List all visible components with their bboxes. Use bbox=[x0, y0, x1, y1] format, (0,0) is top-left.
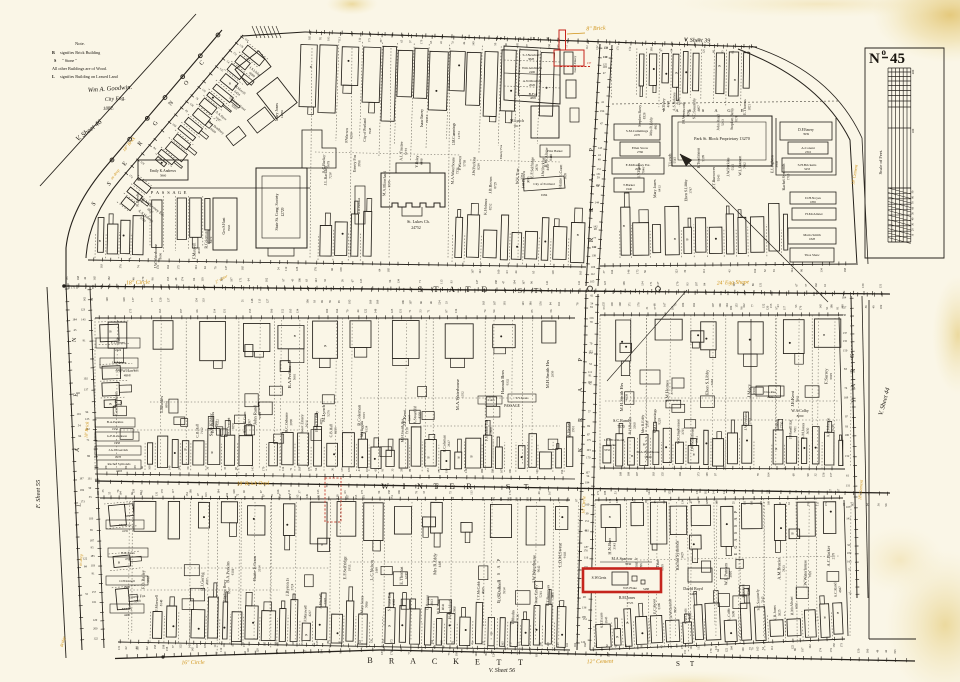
svg-text:2617: 2617 bbox=[447, 440, 451, 447]
svg-text:B.M.Jones: B.M.Jones bbox=[801, 422, 805, 439]
svg-text:100: 100 bbox=[298, 278, 302, 283]
svg-text:131: 131 bbox=[597, 167, 602, 171]
svg-text:164: 164 bbox=[842, 295, 847, 299]
svg-text:199: 199 bbox=[454, 651, 458, 656]
svg-text:171: 171 bbox=[649, 281, 653, 286]
svg-text:7210: 7210 bbox=[328, 172, 332, 179]
svg-text:J.W.Waterhouse: J.W.Waterhouse bbox=[531, 555, 536, 583]
svg-text:A.Haskell: A.Haskell bbox=[319, 593, 323, 608]
svg-text:4041: 4041 bbox=[441, 603, 445, 610]
svg-text:175: 175 bbox=[587, 438, 592, 442]
svg-text:141: 141 bbox=[545, 280, 549, 285]
svg-text:W.K.True: W.K.True bbox=[514, 168, 519, 184]
svg-text:120: 120 bbox=[370, 638, 374, 643]
svg-text:115: 115 bbox=[440, 279, 444, 284]
svg-text:M.Lynch: M.Lynch bbox=[510, 119, 524, 123]
svg-text:J.Byron Jr: J.Byron Jr bbox=[285, 578, 290, 597]
svg-text:8729: 8729 bbox=[493, 182, 497, 189]
svg-text:J.W.Perkins: J.W.Perkins bbox=[744, 412, 748, 431]
svg-text:157: 157 bbox=[589, 351, 594, 355]
svg-text:R.Coleman: R.Coleman bbox=[204, 231, 208, 248]
svg-text:R: R bbox=[466, 482, 472, 491]
svg-text:137: 137 bbox=[843, 331, 848, 335]
svg-text:E.F.Selfridge: E.F.Selfridge bbox=[529, 157, 535, 178]
svg-text:7982: 7982 bbox=[743, 162, 747, 169]
svg-text:185: 185 bbox=[347, 299, 351, 304]
svg-text:W: W bbox=[381, 482, 389, 491]
svg-text:Emily K.Andrews: Emily K.Andrews bbox=[150, 169, 177, 173]
svg-text:111: 111 bbox=[287, 489, 291, 494]
svg-text:R: R bbox=[389, 656, 395, 665]
svg-text:177: 177 bbox=[150, 297, 154, 302]
svg-text:T.Lynch: T.Lynch bbox=[667, 154, 672, 167]
svg-text:103: 103 bbox=[652, 471, 656, 476]
svg-text:4038: 4038 bbox=[197, 247, 201, 254]
svg-text:120: 120 bbox=[603, 55, 608, 59]
svg-text:172: 172 bbox=[389, 639, 393, 644]
svg-text:4322: 4322 bbox=[215, 419, 219, 426]
svg-text:142: 142 bbox=[83, 296, 87, 301]
svg-text:8696: 8696 bbox=[158, 252, 162, 259]
svg-text:John Rand: John Rand bbox=[716, 114, 720, 130]
svg-text:7710: 7710 bbox=[786, 173, 790, 180]
svg-text:R: R bbox=[578, 418, 584, 422]
svg-text:144: 144 bbox=[712, 489, 716, 494]
svg-text:2270: 2270 bbox=[634, 133, 641, 137]
svg-text:120: 120 bbox=[93, 618, 98, 622]
svg-text:167: 167 bbox=[470, 269, 474, 274]
svg-text:T.Rhodes: T.Rhodes bbox=[511, 610, 515, 625]
svg-text:128: 128 bbox=[256, 648, 260, 653]
svg-text:8517: 8517 bbox=[227, 587, 231, 594]
svg-text:183: 183 bbox=[445, 468, 449, 473]
svg-text:194: 194 bbox=[585, 481, 590, 485]
svg-text:C.B.Hall: C.B.Hall bbox=[195, 424, 199, 438]
svg-text:C: C bbox=[432, 657, 437, 666]
svg-text:108: 108 bbox=[626, 471, 630, 476]
svg-text:5668: 5668 bbox=[688, 612, 692, 619]
svg-text:125: 125 bbox=[390, 308, 394, 313]
svg-text:4135: 4135 bbox=[122, 529, 129, 533]
svg-text:2808: 2808 bbox=[489, 427, 493, 434]
svg-text:157: 157 bbox=[92, 590, 97, 594]
svg-text:7080: 7080 bbox=[365, 601, 369, 608]
svg-text:108: 108 bbox=[618, 302, 622, 307]
svg-text:1821: 1821 bbox=[747, 104, 751, 111]
svg-text:112: 112 bbox=[284, 266, 288, 271]
svg-text:112: 112 bbox=[280, 308, 284, 313]
svg-text:195: 195 bbox=[288, 308, 292, 313]
svg-text:7046: 7046 bbox=[641, 167, 645, 174]
svg-text:182: 182 bbox=[879, 304, 883, 309]
svg-text:8090: 8090 bbox=[797, 414, 804, 418]
svg-text:18" Circle: 18" Circle bbox=[126, 280, 151, 287]
svg-text:167: 167 bbox=[493, 300, 497, 305]
svg-text:S: S bbox=[518, 286, 522, 295]
svg-text:Y.Ilsley: Y.Ilsley bbox=[414, 155, 419, 167]
svg-text:125: 125 bbox=[702, 48, 706, 53]
svg-text:16' Circle: 16' Circle bbox=[581, 496, 587, 514]
svg-text:193: 193 bbox=[326, 36, 330, 41]
svg-text:135: 135 bbox=[843, 339, 848, 343]
svg-text:158: 158 bbox=[131, 488, 135, 493]
svg-text:Rachel Symonds: Rachel Symonds bbox=[108, 462, 132, 466]
svg-text:137: 137 bbox=[131, 297, 135, 302]
svg-text:8" Brick: 8" Brick bbox=[586, 25, 606, 32]
svg-text:186: 186 bbox=[189, 489, 193, 494]
svg-text:Eben S.Libby: Eben S.Libby bbox=[315, 411, 319, 432]
svg-text:198: 198 bbox=[490, 468, 494, 473]
svg-text:E: E bbox=[184, 190, 187, 195]
svg-text:Mrs R.Eddy: Mrs R.Eddy bbox=[432, 552, 437, 574]
svg-text:1955: 1955 bbox=[348, 564, 352, 571]
svg-text:149: 149 bbox=[471, 41, 475, 46]
svg-text:145: 145 bbox=[262, 641, 266, 646]
svg-text:6651: 6651 bbox=[794, 602, 798, 609]
svg-text:168: 168 bbox=[619, 471, 623, 476]
svg-text:123: 123 bbox=[603, 280, 607, 285]
svg-text:M.A.Waterhouse: M.A.Waterhouse bbox=[455, 379, 460, 410]
svg-text:2256: 2256 bbox=[677, 98, 681, 105]
svg-text:145: 145 bbox=[819, 304, 823, 309]
svg-text:113: 113 bbox=[337, 36, 341, 41]
svg-text:167: 167 bbox=[547, 490, 551, 495]
svg-text:5013: 5013 bbox=[721, 119, 725, 126]
svg-text:A: A bbox=[449, 284, 456, 294]
svg-text:F.Maxwell: F.Maxwell bbox=[303, 605, 307, 621]
svg-text:Pilot Barker: Pilot Barker bbox=[547, 149, 563, 153]
svg-text:M.Higgins: M.Higgins bbox=[360, 420, 364, 437]
svg-text:3348: 3348 bbox=[710, 379, 714, 386]
svg-text:151: 151 bbox=[766, 489, 770, 494]
svg-text:162: 162 bbox=[145, 646, 149, 651]
svg-text:124: 124 bbox=[790, 268, 794, 273]
svg-text:S: S bbox=[676, 660, 680, 668]
svg-text:172: 172 bbox=[160, 489, 164, 494]
svg-text:159: 159 bbox=[861, 283, 865, 288]
svg-text:City of Portland: City of Portland bbox=[363, 118, 367, 141]
svg-text:signifies Building on Leased L: signifies Building on Leased Land bbox=[60, 74, 119, 79]
svg-text:19631: 19631 bbox=[425, 115, 429, 123]
svg-text:" Stone ": " Stone " bbox=[62, 58, 77, 63]
svg-text:166: 166 bbox=[276, 489, 280, 494]
svg-text:174: 174 bbox=[181, 276, 185, 281]
svg-text:5241: 5241 bbox=[539, 591, 543, 598]
svg-text:176: 176 bbox=[314, 266, 318, 271]
svg-text:signifies Brick Building: signifies Brick Building bbox=[60, 50, 101, 55]
svg-text:173: 173 bbox=[697, 472, 701, 477]
svg-text:190: 190 bbox=[401, 300, 405, 305]
svg-text:R.Byerlin: R.Byerlin bbox=[136, 192, 140, 207]
svg-text:3332: 3332 bbox=[604, 448, 611, 452]
svg-text:102: 102 bbox=[703, 489, 707, 494]
svg-text:134: 134 bbox=[681, 499, 685, 504]
svg-text:2805: 2805 bbox=[551, 592, 555, 599]
svg-text:J.B.Brown: J.B.Brown bbox=[487, 176, 493, 193]
svg-text:154: 154 bbox=[195, 298, 199, 303]
svg-text:1767: 1767 bbox=[748, 418, 752, 425]
svg-text:9136: 9136 bbox=[516, 614, 520, 621]
svg-text:4875: 4875 bbox=[319, 418, 323, 425]
svg-text:9103: 9103 bbox=[563, 551, 567, 558]
svg-text:2337: 2337 bbox=[323, 598, 327, 605]
svg-text:Isaac Emery: Isaac Emery bbox=[300, 414, 304, 433]
svg-text:168: 168 bbox=[122, 297, 126, 302]
svg-text:127: 127 bbox=[829, 488, 833, 493]
svg-text:105: 105 bbox=[240, 265, 244, 270]
svg-text:122: 122 bbox=[94, 637, 99, 641]
svg-text:155: 155 bbox=[668, 490, 672, 495]
svg-text:122: 122 bbox=[595, 45, 599, 50]
svg-text:S: S bbox=[496, 573, 501, 575]
svg-text:180: 180 bbox=[681, 302, 685, 307]
svg-text:4266: 4266 bbox=[686, 109, 690, 116]
svg-text:143: 143 bbox=[314, 278, 318, 283]
svg-text:T: T bbox=[524, 482, 529, 491]
svg-text:184: 184 bbox=[72, 318, 77, 322]
svg-text:104: 104 bbox=[678, 472, 682, 477]
svg-text:169: 169 bbox=[508, 469, 512, 474]
svg-text:117: 117 bbox=[509, 641, 513, 646]
svg-text:109: 109 bbox=[325, 308, 329, 313]
svg-text:1981: 1981 bbox=[752, 387, 756, 394]
svg-text:T: T bbox=[518, 658, 523, 667]
svg-text:4227: 4227 bbox=[308, 610, 312, 617]
svg-text:137: 137 bbox=[167, 297, 171, 302]
svg-text:171: 171 bbox=[71, 286, 76, 290]
svg-text:117: 117 bbox=[171, 489, 175, 494]
svg-text:100: 100 bbox=[718, 303, 722, 308]
svg-text:T: T bbox=[465, 284, 471, 294]
svg-text:103: 103 bbox=[100, 263, 104, 268]
svg-text:4403: 4403 bbox=[116, 469, 123, 473]
svg-text:151: 151 bbox=[300, 640, 304, 645]
svg-text:4838: 4838 bbox=[625, 393, 629, 400]
svg-text:A.C.Backer: A.C.Backer bbox=[826, 545, 831, 566]
svg-text:119: 119 bbox=[201, 277, 205, 282]
svg-text:M.A.Sparrow: M.A.Sparrow bbox=[612, 557, 633, 561]
svg-text:175: 175 bbox=[636, 269, 640, 274]
svg-text:F.Maxwell: F.Maxwell bbox=[193, 243, 197, 259]
svg-text:5541: 5541 bbox=[731, 163, 735, 170]
svg-text:Park St. Block Proprietary 132: Park St. Block Proprietary 13270 bbox=[694, 136, 750, 141]
svg-text:175: 175 bbox=[129, 308, 133, 313]
svg-text:9332: 9332 bbox=[505, 378, 509, 385]
svg-text:200: 200 bbox=[911, 69, 915, 74]
svg-text:R.C.Osburne: R.C.Osburne bbox=[285, 412, 289, 432]
svg-text:132: 132 bbox=[178, 644, 182, 649]
svg-text:45: 45 bbox=[890, 51, 905, 67]
svg-text:190: 190 bbox=[547, 43, 551, 48]
svg-text:A.L.Trustee: A.L.Trustee bbox=[398, 141, 404, 161]
svg-text:S: S bbox=[418, 284, 423, 294]
svg-text:2878: 2878 bbox=[535, 164, 539, 171]
svg-text:170: 170 bbox=[636, 302, 640, 307]
svg-text:142: 142 bbox=[491, 496, 495, 501]
svg-text:Mrs R.Eddy: Mrs R.Eddy bbox=[649, 117, 653, 136]
svg-text:Hannah Bros: Hannah Bros bbox=[500, 370, 505, 394]
svg-text:100: 100 bbox=[911, 128, 915, 133]
svg-text:M.Lacy: M.Lacy bbox=[122, 607, 133, 611]
svg-text:1828: 1828 bbox=[809, 237, 816, 241]
svg-text:24' Egg Shape: 24' Egg Shape bbox=[717, 279, 750, 286]
svg-text:B.A.Perkins: B.A.Perkins bbox=[225, 561, 230, 583]
svg-text:F.O.Bailey: F.O.Bailey bbox=[141, 569, 146, 589]
svg-text:146: 146 bbox=[474, 652, 478, 657]
svg-text:194: 194 bbox=[600, 109, 605, 113]
svg-text:R: R bbox=[589, 208, 595, 212]
svg-text:B.J.Gerrig: B.J.Gerrig bbox=[200, 572, 205, 591]
svg-text:155: 155 bbox=[248, 308, 252, 313]
svg-text:131: 131 bbox=[846, 483, 851, 487]
svg-text:5758: 5758 bbox=[462, 160, 466, 167]
svg-text:6104: 6104 bbox=[231, 568, 235, 575]
svg-text:3160: 3160 bbox=[633, 422, 637, 429]
svg-text:7152: 7152 bbox=[200, 427, 204, 434]
svg-text:J.W.Perkins: J.W.Perkins bbox=[725, 157, 730, 176]
svg-text:171: 171 bbox=[596, 490, 600, 495]
svg-text:J.E.Mabon: J.E.Mabon bbox=[112, 361, 127, 365]
svg-text:R.Coleman: R.Coleman bbox=[442, 435, 446, 452]
svg-text:165: 165 bbox=[501, 641, 505, 646]
svg-text:122: 122 bbox=[790, 644, 794, 649]
svg-text:195: 195 bbox=[705, 472, 709, 477]
svg-text:131: 131 bbox=[87, 476, 92, 480]
svg-text:171: 171 bbox=[239, 277, 243, 282]
svg-text:199: 199 bbox=[622, 281, 626, 286]
svg-text:160: 160 bbox=[496, 269, 500, 274]
svg-text:127: 127 bbox=[656, 281, 660, 286]
svg-text:E: E bbox=[475, 658, 480, 667]
svg-text:101: 101 bbox=[742, 500, 746, 505]
svg-text:176: 176 bbox=[508, 490, 512, 495]
svg-text:131: 131 bbox=[117, 645, 121, 650]
svg-text:A: A bbox=[410, 657, 416, 666]
svg-text:1901: 1901 bbox=[571, 426, 575, 433]
svg-text:3825: 3825 bbox=[777, 609, 781, 616]
svg-text:178: 178 bbox=[709, 648, 713, 653]
svg-text:4490: 4490 bbox=[420, 158, 424, 165]
svg-text:195: 195 bbox=[893, 649, 897, 654]
svg-text:R: R bbox=[532, 36, 535, 41]
svg-text:186: 186 bbox=[529, 301, 533, 306]
svg-text:138: 138 bbox=[592, 254, 597, 258]
svg-text:198: 198 bbox=[494, 279, 498, 284]
svg-text:2660: 2660 bbox=[453, 606, 457, 613]
svg-text:F.Surrey: F.Surrey bbox=[824, 368, 829, 384]
svg-text:197: 197 bbox=[379, 38, 383, 43]
svg-text:161: 161 bbox=[585, 529, 590, 533]
svg-text:Emery Fos: Emery Fos bbox=[352, 154, 357, 172]
svg-text:176: 176 bbox=[118, 264, 122, 269]
svg-text:197: 197 bbox=[179, 308, 183, 313]
svg-text:136: 136 bbox=[506, 497, 510, 502]
svg-text:14481: 14481 bbox=[280, 109, 284, 118]
svg-text:3828: 3828 bbox=[528, 57, 535, 61]
svg-text:N.E.Flake: N.E.Flake bbox=[623, 586, 637, 590]
svg-text:2725: 2725 bbox=[627, 601, 634, 605]
svg-text:5488: 5488 bbox=[690, 592, 697, 596]
svg-text:167: 167 bbox=[522, 280, 526, 285]
svg-text:107: 107 bbox=[711, 303, 715, 308]
svg-text:L.D.M.Sweat: L.D.M.Sweat bbox=[557, 542, 562, 567]
svg-text:155: 155 bbox=[735, 303, 739, 308]
svg-text:Geo.S.Hunt: Geo.S.Hunt bbox=[222, 218, 226, 235]
svg-text:Rachel Symonds: Rachel Symonds bbox=[675, 540, 680, 570]
svg-text:E.Clement: E.Clement bbox=[111, 341, 125, 345]
svg-text:Eben S.Libby: Eben S.Libby bbox=[683, 179, 688, 201]
svg-text:151: 151 bbox=[683, 649, 687, 654]
svg-text:118: 118 bbox=[551, 270, 555, 275]
svg-text:7823: 7823 bbox=[782, 565, 786, 572]
svg-text:107: 107 bbox=[409, 300, 413, 305]
svg-text:J.Sparrow: J.Sparrow bbox=[118, 523, 132, 527]
svg-text:158: 158 bbox=[832, 643, 836, 648]
svg-text:198: 198 bbox=[649, 47, 653, 52]
svg-text:175: 175 bbox=[367, 37, 371, 42]
svg-text:3958: 3958 bbox=[357, 160, 361, 167]
svg-text:151: 151 bbox=[585, 519, 590, 523]
svg-text:143: 143 bbox=[81, 318, 86, 322]
svg-text:2496: 2496 bbox=[529, 70, 536, 74]
svg-text:113: 113 bbox=[258, 298, 262, 303]
svg-text:182: 182 bbox=[80, 488, 85, 492]
svg-text:131: 131 bbox=[608, 498, 612, 503]
svg-text:T: T bbox=[433, 284, 439, 294]
svg-text:4363: 4363 bbox=[392, 599, 396, 606]
svg-text:158: 158 bbox=[165, 646, 169, 651]
svg-text:161: 161 bbox=[670, 305, 674, 310]
svg-text:163: 163 bbox=[478, 269, 482, 274]
svg-text:8737: 8737 bbox=[670, 387, 674, 394]
svg-text:4609: 4609 bbox=[481, 587, 485, 594]
svg-text:Mary Jones: Mary Jones bbox=[275, 103, 279, 121]
svg-text:146: 146 bbox=[615, 498, 619, 503]
svg-text:S.C.Rand: S.C.Rand bbox=[613, 418, 630, 423]
svg-text:168: 168 bbox=[714, 500, 718, 505]
svg-text:146: 146 bbox=[627, 269, 631, 274]
svg-text:195: 195 bbox=[166, 276, 170, 281]
svg-text:103: 103 bbox=[586, 448, 591, 452]
svg-text:J.W.Waterhouse: J.W.Waterhouse bbox=[690, 427, 694, 452]
svg-text:K.R.Jones: K.R.Jones bbox=[121, 551, 135, 555]
svg-text:144: 144 bbox=[320, 649, 324, 654]
svg-text:174: 174 bbox=[818, 647, 822, 652]
svg-text:J.Morrill Est: J.Morrill Est bbox=[789, 419, 793, 439]
svg-text:128: 128 bbox=[105, 297, 109, 302]
svg-text:189: 189 bbox=[347, 467, 351, 472]
svg-text:127: 127 bbox=[842, 305, 847, 309]
svg-text:101: 101 bbox=[557, 301, 561, 306]
svg-text:S.M.Homes: S.M.Homes bbox=[665, 380, 670, 402]
svg-text:173: 173 bbox=[840, 642, 844, 647]
svg-text:127: 127 bbox=[265, 298, 269, 303]
svg-text:148: 148 bbox=[374, 308, 378, 313]
svg-text:H.McAlister: H.McAlister bbox=[805, 212, 823, 216]
svg-text:158: 158 bbox=[387, 489, 391, 494]
svg-text:G.E.R.Jackson: G.E.R.Jackson bbox=[107, 434, 127, 438]
svg-text:196: 196 bbox=[397, 490, 401, 495]
svg-text:151: 151 bbox=[583, 617, 588, 621]
svg-text:T.Rhodes: T.Rhodes bbox=[159, 396, 164, 414]
svg-text:148: 148 bbox=[250, 298, 254, 303]
svg-text:185: 185 bbox=[90, 554, 95, 558]
svg-text:167: 167 bbox=[499, 468, 503, 473]
svg-text:A: A bbox=[733, 517, 738, 520]
svg-text:184: 184 bbox=[216, 489, 220, 494]
svg-text:147: 147 bbox=[475, 279, 479, 284]
svg-text:T: T bbox=[534, 286, 539, 295]
